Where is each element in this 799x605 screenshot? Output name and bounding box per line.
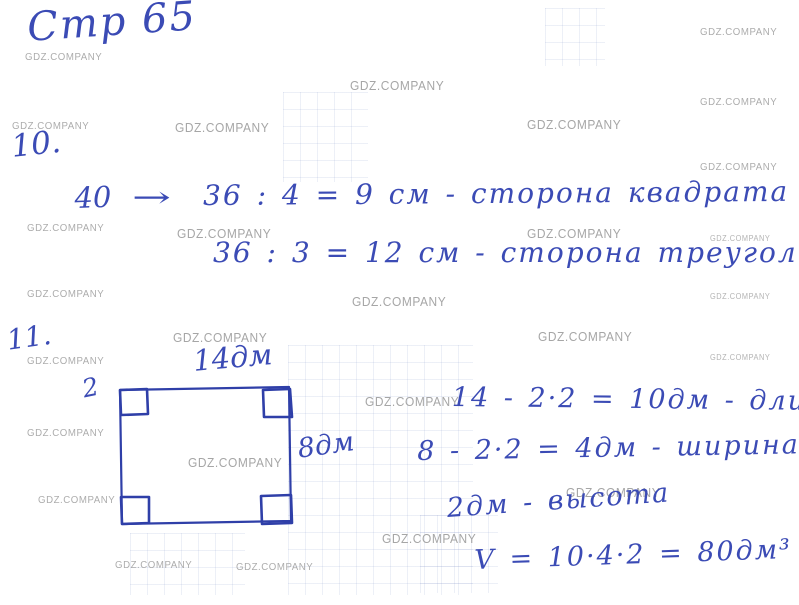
- watermark: GDZ.COMPANY: [38, 494, 115, 506]
- grid-paper-patch: [288, 345, 473, 595]
- notebook-page: { "colors": { "ink": "#3b4bb5", "waterma…: [0, 0, 799, 605]
- watermark: GDZ.COMPANY: [538, 329, 632, 344]
- page-title: Стр 65: [26, 0, 198, 48]
- corner-square-top-left: [120, 389, 148, 415]
- box-net-figure: [108, 378, 308, 538]
- watermark: GDZ.COMPANY: [352, 294, 446, 309]
- watermark: GDZ.COMPANY: [27, 288, 104, 300]
- watermark: GDZ.COMPANY: [710, 292, 770, 301]
- watermark: GDZ.COMPANY: [27, 427, 104, 439]
- watermark: GDZ.COMPANY: [350, 78, 444, 93]
- watermark: GDZ.COMPANY: [27, 355, 104, 367]
- problem-11-calc-height: 2дм - высота: [446, 479, 671, 522]
- problem-11-calc-width: 8 - 2·2 = 4дм - ширина: [417, 431, 799, 465]
- watermark: GDZ.COMPANY: [25, 51, 102, 63]
- problem-10-given: 40: [74, 183, 112, 213]
- watermark: GDZ.COMPANY: [710, 353, 770, 362]
- grid-paper-patch: [283, 92, 368, 182]
- rectangle-outline: [120, 387, 291, 524]
- figure-left-dimension-label: 2: [80, 374, 101, 402]
- watermark: GDZ.COMPANY: [700, 26, 777, 38]
- figure-top-dimension-label: 14дм: [192, 340, 274, 376]
- watermark: GDZ.COMPANY: [382, 531, 476, 546]
- corner-square-bottom-left: [121, 497, 149, 524]
- problem-10-number: 10.: [10, 127, 62, 163]
- arrow-icon: →: [132, 183, 171, 212]
- figure-right-dimension-label: 8дм: [296, 428, 356, 463]
- problem-11-calc-volume: V = 10·4·2 = 80дм³: [474, 536, 792, 574]
- watermark: GDZ.COMPANY: [175, 120, 269, 135]
- grid-paper-patch: [545, 8, 605, 66]
- watermark: GDZ.COMPANY: [236, 561, 313, 573]
- problem-10-line-1: 36 : 4 = 9 см - сторона квадрата: [203, 178, 789, 210]
- watermark: GDZ.COMPANY: [27, 222, 104, 234]
- watermark: GDZ.COMPANY: [365, 394, 459, 409]
- problem-11-number: 11.: [5, 321, 53, 355]
- problem-10-line-2: 36 : 3 = 12 см - сторона треугольника: [213, 239, 799, 267]
- watermark: GDZ.COMPANY: [700, 96, 777, 108]
- problem-11-calc-length: 14 - 2·2 = 10дм - длина: [452, 384, 799, 415]
- watermark: GDZ.COMPANY: [115, 559, 192, 571]
- watermark: GDZ.COMPANY: [527, 117, 621, 132]
- watermark: GDZ.COMPANY: [700, 161, 777, 173]
- corner-square-top-right: [263, 389, 292, 417]
- corner-square-bottom-right: [261, 495, 292, 524]
